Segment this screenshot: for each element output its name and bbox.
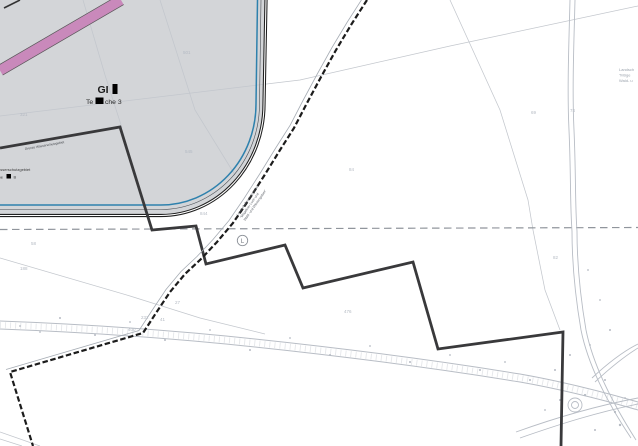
left-label-line1: asserschutzgebiet <box>0 167 31 172</box>
redaction-box <box>96 98 104 105</box>
parcel-number: 844 <box>200 211 208 216</box>
parcel-number: 476 <box>344 309 352 314</box>
l-marker-icon: L <box>237 235 247 245</box>
parcel-number: 321 <box>20 112 28 117</box>
parcel-number: 74 <box>570 108 576 113</box>
dashed-boundary-line <box>0 228 638 230</box>
parcel-number: 501 <box>183 50 191 55</box>
gi-use-label: GI <box>97 84 108 96</box>
zoning-plan-map: GI Te che 3 Grenze Wasserschutzgebiet as… <box>0 0 638 446</box>
stipple-dots <box>19 269 626 431</box>
gi-sub-prefix: Te <box>86 99 93 106</box>
parcel-number: 545 <box>185 149 193 154</box>
gi-sub-suffix: che 3 <box>105 99 122 106</box>
parcel-number: 84 <box>349 167 355 172</box>
parcel-number: 41 <box>160 317 166 322</box>
right-edge-label: Landsch "Möge Wald- u <box>619 67 634 83</box>
parcel-number: 232 <box>141 315 149 320</box>
parcel-number: 188 <box>20 266 28 271</box>
stream-double-line <box>568 0 586 330</box>
l-marker-letter: L <box>241 239 245 245</box>
map-canvas: GI Te che 3 Grenze Wasserschutzgebiet as… <box>0 0 638 446</box>
redaction-box <box>113 84 118 94</box>
parcel-number: 400 <box>128 327 136 332</box>
parcel-number: 58 <box>31 241 37 246</box>
parcel-number: 82 <box>553 255 559 260</box>
landscape-protection-label: Landschaftsschutzgebiet "Mögeliner Luch … <box>236 183 268 221</box>
redaction-box <box>7 174 12 179</box>
parcel-number: 69 <box>531 110 537 115</box>
corner-road-lines <box>0 432 40 446</box>
parcel-number: 27 <box>175 300 181 305</box>
left-label-line2-post: B <box>14 175 17 180</box>
ls-right-line2: "Möge <box>619 73 631 78</box>
ls-right-line1: Landsch <box>619 67 634 72</box>
ls-right-line3: Wald- u <box>619 78 633 83</box>
parcel-line <box>450 0 560 330</box>
